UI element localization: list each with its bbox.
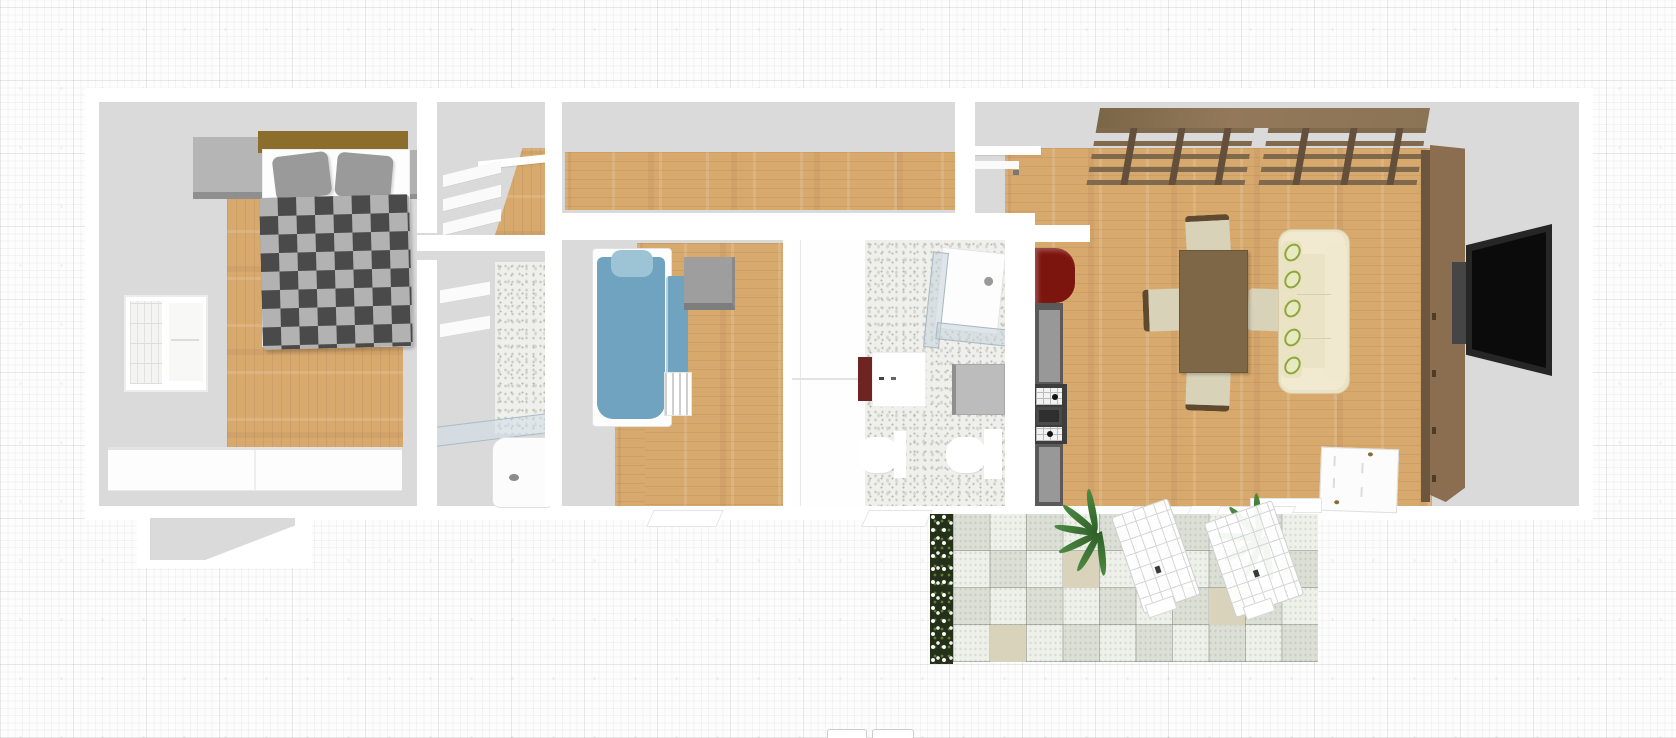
dresser-seam [254, 450, 256, 490]
toilet-tank [894, 431, 906, 478]
tv-cabinet-edge [1421, 150, 1430, 502]
stove-middle [1036, 407, 1062, 425]
bidet-bowl[interactable] [946, 437, 986, 473]
sofa-seam-2 [1297, 338, 1331, 339]
entry-doorstop [1013, 170, 1019, 175]
bottom-button-2[interactable] [872, 729, 914, 738]
counter-panel-1 [1039, 310, 1060, 382]
wall-bedroom-closet-lower [417, 260, 437, 506]
loft-beam-e [1340, 128, 1357, 185]
threshold-kids-room [646, 510, 724, 527]
toilet-bowl[interactable] [858, 437, 898, 473]
bathtub-drain [509, 474, 519, 481]
wall-hall-living [955, 102, 975, 217]
floor-plan-canvas [0, 0, 1676, 738]
cabinet-handle-3 [1432, 427, 1436, 434]
bottom-button-1[interactable] [827, 729, 867, 738]
cabinet-handle-2 [1432, 370, 1436, 377]
bathtub[interactable] [492, 437, 551, 508]
sofa-pillow-3 [1282, 297, 1302, 321]
bedroom-dresser[interactable] [108, 447, 402, 491]
wardrobe-seam-h [792, 378, 865, 380]
shower-drain [984, 276, 994, 286]
sofa[interactable] [1278, 229, 1350, 394]
door-slot-3 [1361, 463, 1363, 473]
window-curtain-pane [166, 303, 203, 381]
washing-machine[interactable] [952, 364, 1005, 415]
wardrobe-seam-v [800, 240, 801, 506]
stove-window [1039, 410, 1059, 422]
kids-room-wood-floor-2 [615, 420, 645, 506]
hall-closet-wardrobe[interactable] [792, 240, 867, 506]
door-hinge-dot [1334, 500, 1339, 504]
sofa-backrest [1325, 242, 1347, 382]
bed-pillow-right[interactable] [334, 152, 394, 201]
sink-vanity-front[interactable] [858, 357, 872, 401]
wall-kidsroom-closet2 [783, 237, 792, 506]
wall-closetcol-hall [545, 102, 562, 506]
bedroom-window[interactable] [124, 295, 208, 392]
single-bed-blue-duvet[interactable] [597, 257, 665, 419]
loft-beam-a [1120, 128, 1137, 185]
door-slot-1 [1333, 456, 1335, 466]
loft-beam-d [1292, 128, 1309, 185]
sofa-pillow-5 [1282, 354, 1302, 378]
wall-kitchen-top [1005, 225, 1090, 242]
loft-beam-c [1214, 128, 1231, 185]
door-slot-4 [1360, 487, 1362, 497]
lounger-1-fitting [1155, 565, 1162, 573]
cube-nightstand[interactable] [684, 257, 735, 310]
checkered-duvet[interactable] [259, 194, 413, 350]
sofa-pillow-2 [1282, 268, 1302, 292]
window-pane-bar [171, 339, 199, 341]
dining-table[interactable] [1179, 250, 1248, 373]
loft-front-band [1096, 108, 1430, 128]
hallway-wood-floor[interactable] [565, 152, 955, 210]
loft-beam-f [1386, 128, 1403, 185]
nightstand-left[interactable] [193, 137, 267, 199]
door-handle [1368, 452, 1373, 456]
entry-bench[interactable] [973, 146, 1041, 155]
radiator[interactable] [664, 372, 692, 416]
bed-pillow-left[interactable] [272, 151, 333, 201]
dining-chair-bottom[interactable] [1185, 367, 1230, 412]
burner-grate-bottom [1036, 427, 1062, 441]
loft-bay-right [1258, 128, 1426, 185]
wall-bath2-kitchen [1005, 237, 1035, 506]
tv[interactable] [1466, 224, 1552, 376]
bidet-tank [984, 429, 1002, 479]
flower-planter[interactable] [930, 514, 953, 664]
sofa-seam-1 [1297, 294, 1331, 295]
door-slot-2 [1333, 478, 1335, 488]
beige-tile-3 [990, 625, 1026, 662]
burner-dot-1 [1052, 394, 1058, 400]
burner-dot-2 [1047, 431, 1053, 437]
counter-panel-2 [1039, 447, 1060, 502]
loft-beam-structure[interactable] [1086, 108, 1430, 185]
entry-bench-2 [973, 161, 1019, 169]
tv-screen [1472, 232, 1546, 368]
cabinet-handle-4 [1432, 475, 1436, 482]
loft-bay-left [1086, 128, 1254, 185]
cooktop-stove[interactable] [1031, 384, 1067, 444]
wall-hallway-south [545, 213, 1035, 240]
sofa-pillow-4 [1282, 326, 1302, 350]
threshold-bath2 [861, 510, 933, 527]
wall-closet-bath1 [417, 235, 562, 251]
open-door-leaf[interactable] [1319, 447, 1399, 514]
sink-faucet-2 [891, 377, 896, 380]
wall-bedroom-closet-upper [417, 102, 437, 233]
sofa-pillow-1 [1282, 241, 1302, 265]
window-lattice-pane [130, 301, 162, 384]
loft-beam-b [1168, 128, 1185, 185]
bathroom1-shower-floor [495, 262, 548, 434]
sink-counter[interactable] [872, 352, 926, 407]
kitchen-red-cabinet[interactable] [1035, 248, 1075, 303]
cabinet-handle-1 [1432, 313, 1436, 320]
lounger-2-fitting [1253, 569, 1260, 577]
blue-pillow[interactable] [611, 250, 653, 277]
burner-grate-top [1036, 388, 1062, 405]
sink-faucet [879, 377, 884, 380]
